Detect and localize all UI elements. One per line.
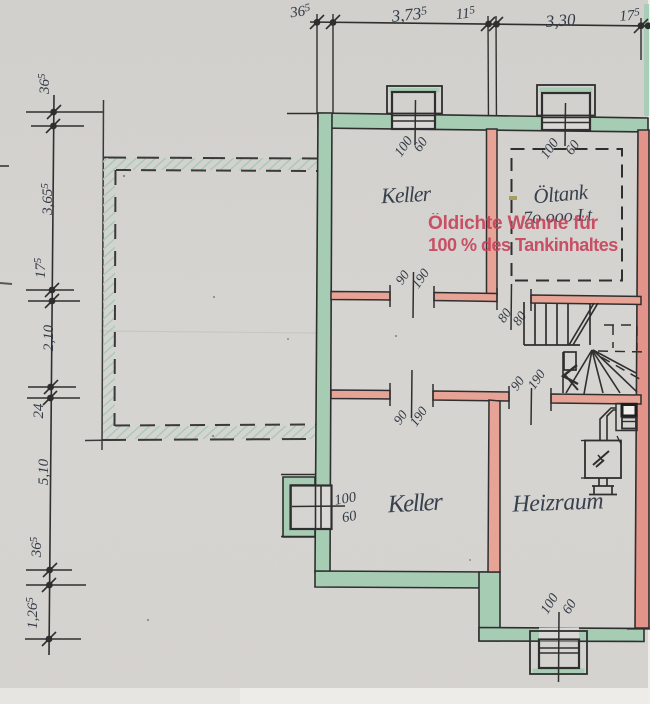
svg-text:100 % des Tankinhaltes: 100 % des Tankinhaltes	[428, 235, 618, 255]
svg-text:Keller: Keller	[386, 489, 444, 519]
svg-text:2,10: 2,10	[41, 324, 57, 351]
svg-text:3,30: 3,30	[544, 10, 576, 31]
svg-text:Öldichte Wanne für: Öldichte Wanne für	[428, 213, 599, 234]
svg-text:24: 24	[31, 403, 47, 419]
svg-text:5,10: 5,10	[36, 458, 52, 485]
svg-text:Keller: Keller	[379, 181, 432, 209]
svg-text:Heizraum: Heizraum	[511, 488, 604, 517]
